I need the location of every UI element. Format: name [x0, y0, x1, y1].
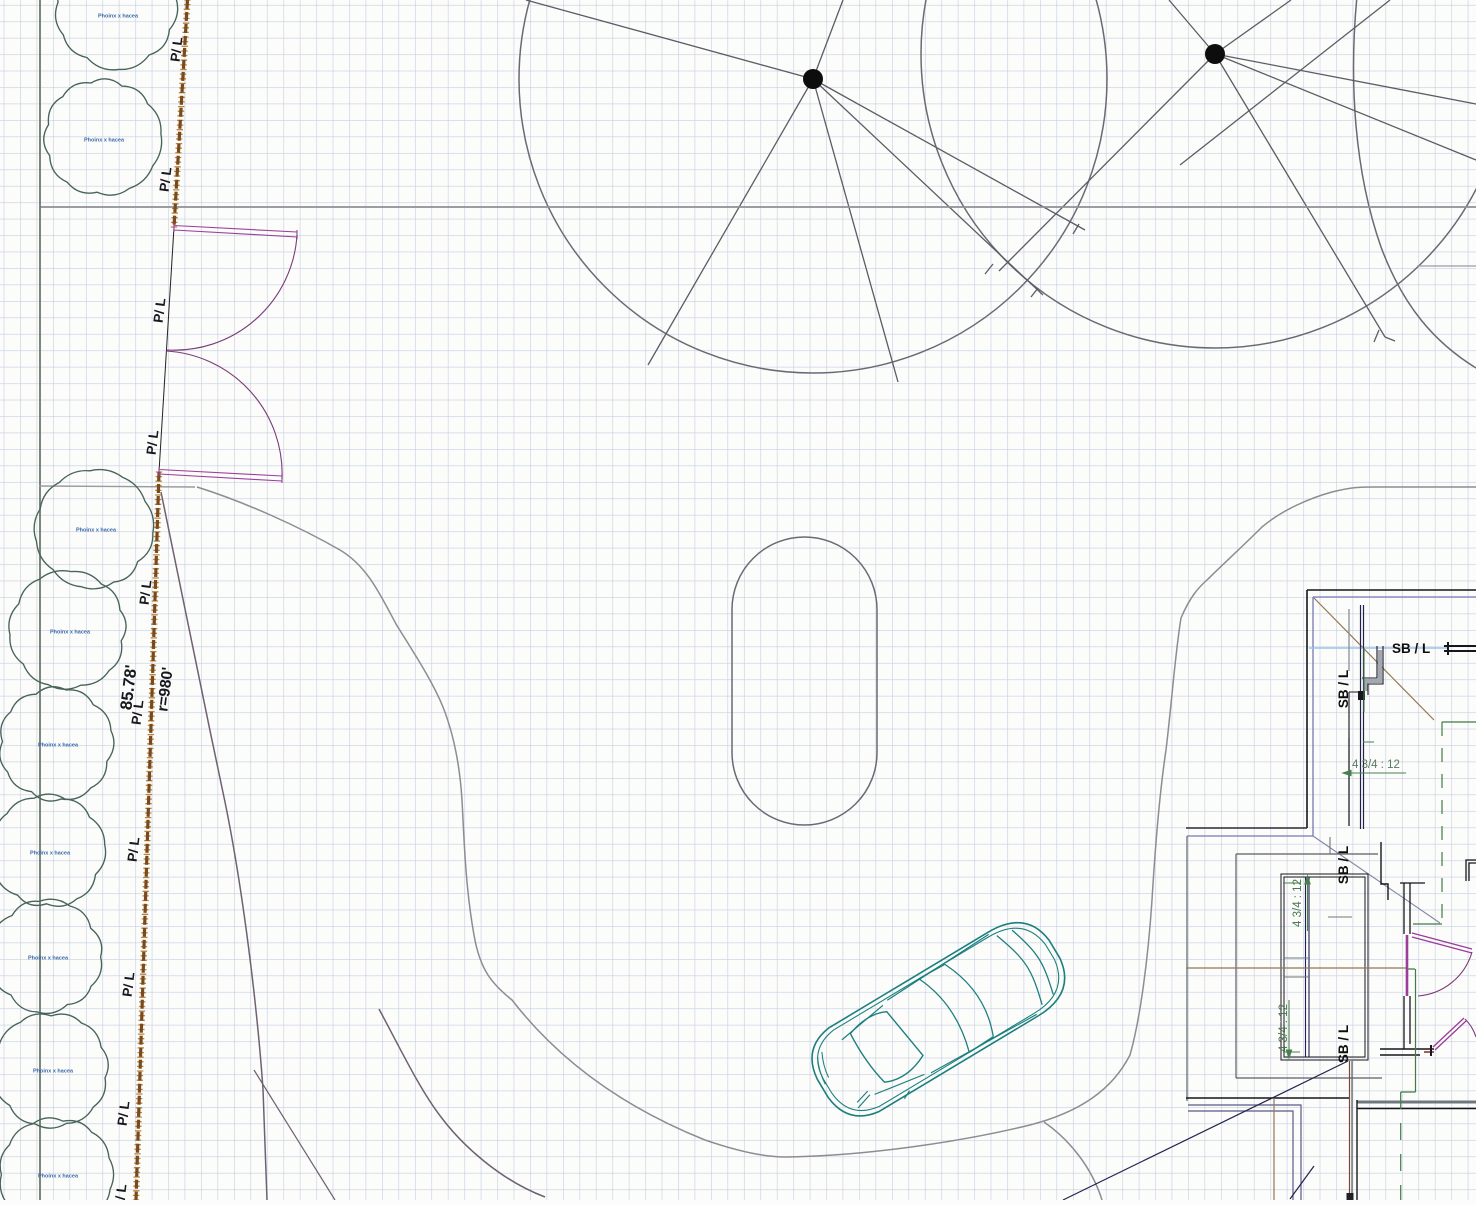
svg-text:P/ L: P/ L	[144, 429, 162, 455]
svg-text:Phoinx x hacea: Phoinx x hacea	[30, 851, 71, 857]
svg-text:4 3/4 : 12: 4 3/4 : 12	[1278, 1004, 1290, 1052]
svg-text:4 3/4 : 12: 4 3/4 : 12	[1292, 879, 1304, 927]
svg-text:P/ L: P/ L	[112, 1183, 130, 1200]
svg-text:Phoinx x hacea: Phoinx x hacea	[28, 956, 69, 962]
svg-text:Phoinx x hacea: Phoinx x hacea	[38, 1174, 79, 1180]
svg-text:P/ L: P/ L	[151, 297, 169, 323]
svg-text:Phoinx x hacea: Phoinx x hacea	[50, 630, 91, 636]
svg-text:SB / L: SB / L	[1336, 670, 1351, 708]
svg-text:Phoinx x hacea: Phoinx x hacea	[98, 14, 139, 20]
svg-text:Phoinx x hacea: Phoinx x hacea	[33, 1069, 74, 1075]
svg-text:P/ L: P/ L	[120, 971, 138, 997]
svg-text:P/ L: P/ L	[168, 36, 186, 62]
svg-text:P/ L: P/ L	[125, 836, 143, 862]
svg-text:P/ L: P/ L	[137, 579, 155, 605]
svg-text:SB / L: SB / L	[1336, 846, 1351, 884]
svg-text:Phoinx x hacea: Phoinx x hacea	[38, 743, 79, 749]
svg-text:4 3/4 : 12: 4 3/4 : 12	[1352, 759, 1400, 771]
svg-text:Phoinx x hacea: Phoinx x hacea	[76, 528, 117, 534]
svg-text:P/ L: P/ L	[157, 166, 175, 192]
svg-text:P/ L: P/ L	[115, 1100, 133, 1126]
svg-text:Phoinx x hacea: Phoinx x hacea	[84, 138, 125, 144]
svg-text:SB / L: SB / L	[1392, 641, 1430, 656]
